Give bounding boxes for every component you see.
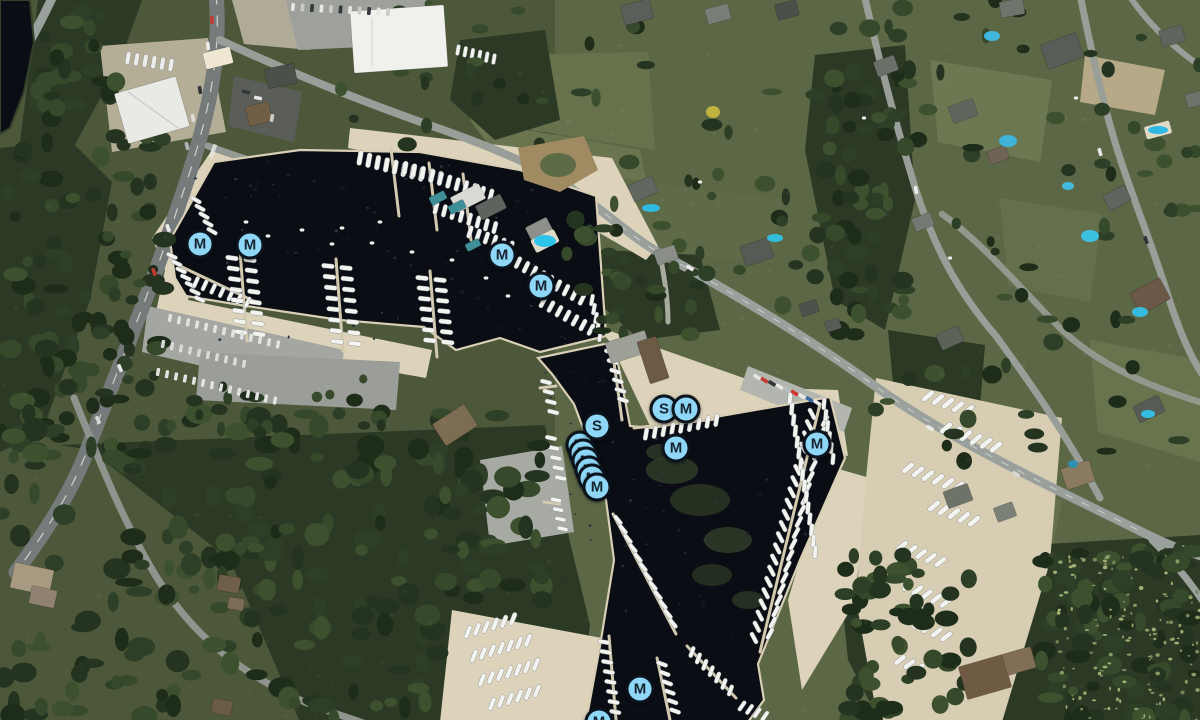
marker-letter: M	[591, 479, 604, 496]
marker-letter: M	[634, 681, 647, 698]
map-marker-m[interactable]: M	[527, 272, 556, 301]
map-marker-m[interactable]: M	[488, 241, 517, 270]
map-marker-m[interactable]: M	[803, 430, 832, 459]
marker-letter: M	[496, 247, 509, 264]
map-marker-m[interactable]: M	[585, 708, 614, 720]
map-marker-m[interactable]: M	[583, 473, 612, 502]
map-viewport[interactable]: MMMMMMMMMMSSMMMMM	[0, 0, 1200, 720]
marker-letter: M	[194, 236, 207, 253]
marker-letter: M	[535, 278, 548, 295]
marker-letter: M	[811, 436, 824, 453]
marker-letter: M	[680, 401, 693, 418]
map-markers-layer: MMMMMMMMMMSSMMMMM	[0, 0, 1200, 720]
map-marker-m[interactable]: M	[626, 675, 655, 704]
marker-letter: M	[593, 714, 606, 720]
map-marker-m[interactable]: M	[672, 395, 701, 424]
marker-letter: S	[659, 401, 669, 418]
map-marker-m[interactable]: M	[186, 230, 215, 259]
marker-letter: S	[592, 418, 602, 435]
map-marker-s[interactable]: S	[583, 412, 612, 441]
map-marker-m[interactable]: M	[236, 231, 265, 260]
marker-letter: M	[670, 440, 683, 457]
marker-letter: M	[244, 237, 257, 254]
map-marker-m[interactable]: M	[662, 434, 691, 463]
